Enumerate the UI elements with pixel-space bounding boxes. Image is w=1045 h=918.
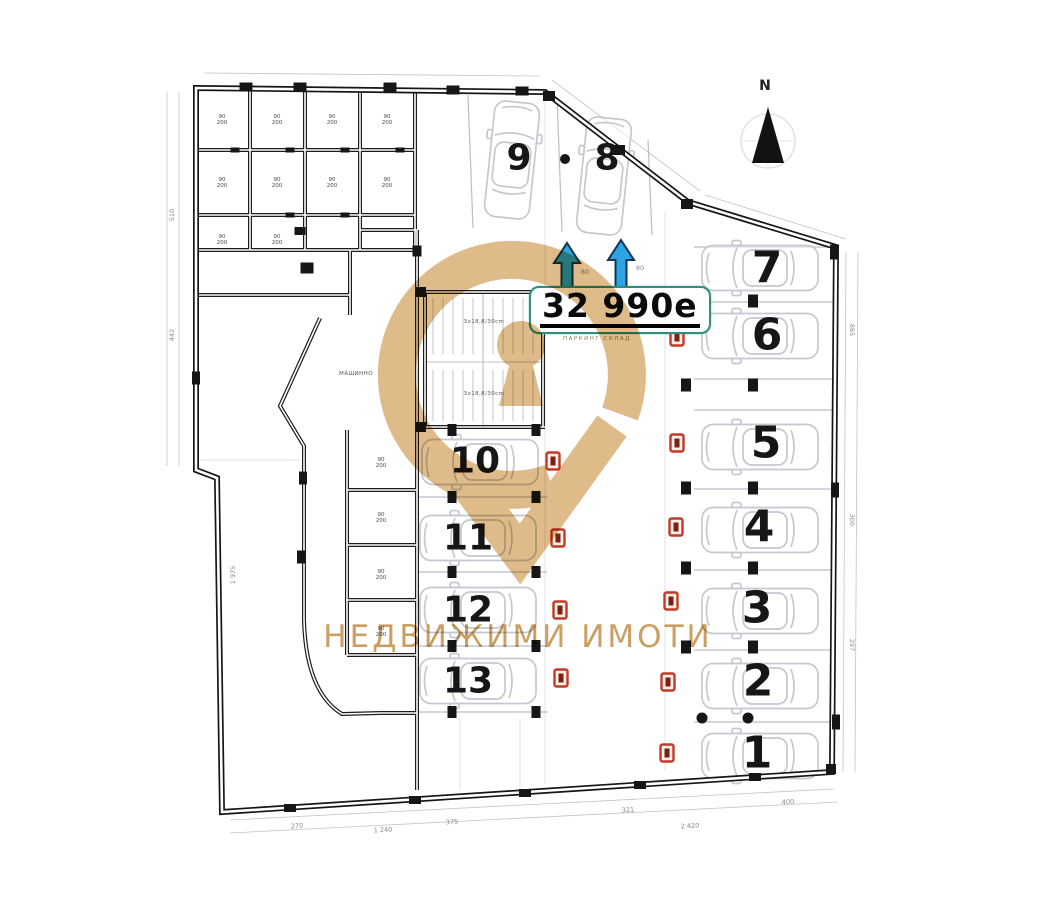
stair-note: 3x18,8/30cm: [464, 391, 505, 397]
storage-cell-label: 90 200: [217, 114, 228, 126]
price-value: 32 990e: [540, 289, 700, 328]
storage-cell-label: 90 200: [376, 512, 387, 524]
dim-label: 1 240: [373, 826, 392, 835]
compass-north-label: N: [759, 78, 771, 94]
machine-room-label: МАШИННО: [339, 371, 373, 377]
dim-label: 375: [446, 818, 459, 827]
parking-spot-number: 10: [450, 441, 500, 482]
parking-spot-number: 2: [743, 656, 774, 707]
price-tag: 32 990e: [529, 286, 711, 334]
up-arrow-icon: [608, 240, 634, 291]
parking-spot-number: 11: [443, 518, 493, 559]
storage-cell-label: 90 200: [217, 177, 228, 189]
storage-cell-label: 90 200: [272, 177, 283, 189]
storage-cell-label: 90 200: [382, 114, 393, 126]
up-arrow-icon: [554, 243, 580, 291]
dim-label: 510: [168, 209, 176, 221]
parking-spot-number: 4: [744, 502, 775, 553]
parking-spot-number: 3: [742, 583, 773, 634]
dim-label: 2 420: [680, 822, 699, 831]
up-arrows: [554, 240, 634, 291]
parking-spot-number: 7: [752, 243, 783, 294]
arrow-note: 80: [636, 264, 644, 272]
red-markers: [547, 329, 684, 762]
storage-cell-label: 90 200: [272, 114, 283, 126]
dim-label: 300: [848, 514, 856, 526]
dim-label: 297: [848, 639, 856, 651]
storage-cell-label: 90 200: [327, 177, 338, 189]
dim-label: 321: [622, 806, 635, 815]
dim-label: 1 975: [229, 566, 237, 585]
floor-plan-canvas: N 1 2 3 4 5 6 7 8 9 10 11 12 13 32 990e …: [0, 0, 1045, 918]
storage-cell-label: 90 200: [327, 114, 338, 126]
storage-cell-label: 90 200: [272, 234, 283, 246]
stair-hatch: [427, 292, 543, 427]
dim-label: 270: [291, 822, 304, 831]
dim-label: 400: [782, 798, 795, 807]
storage-cell-label: 90 200: [217, 234, 228, 246]
parking-spot-number: 13: [443, 661, 493, 702]
parking-spot-number: 9: [506, 138, 531, 179]
storage-cell-label: 90 200: [376, 569, 387, 581]
stair-note: 3x18,8/30cm: [464, 319, 505, 325]
parking-spot-number: 8: [594, 138, 619, 179]
dim-label: 885: [848, 324, 856, 336]
price-caption: ПАРКИНГ СКЛАД: [563, 336, 631, 342]
north-arrow-icon: [741, 107, 795, 168]
storage-cell-label: 90 200: [376, 626, 387, 638]
parking-spot-number: 6: [752, 310, 783, 361]
parking-spot-number: 12: [443, 590, 493, 631]
parking-spot-number: 5: [751, 418, 782, 469]
parking-spot-number: 1: [742, 728, 773, 779]
arrow-note: 80: [581, 268, 589, 276]
storage-cell-label: 90 200: [376, 457, 387, 469]
dim-label: 442: [168, 329, 176, 341]
storage-cell-label: 90 200: [382, 177, 393, 189]
